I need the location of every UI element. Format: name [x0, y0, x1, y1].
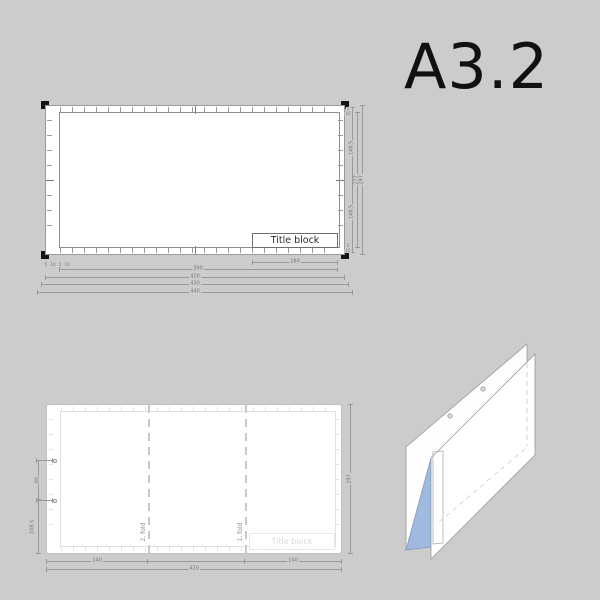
- dim-label: 80: [36, 476, 41, 484]
- front-view-sheet: Title block: [45, 105, 345, 255]
- dim-label: 140: [91, 559, 103, 564]
- format-title: A3.2: [404, 36, 549, 98]
- dim-label: 420: [189, 275, 201, 280]
- dim-tick: [244, 559, 245, 564]
- dim-line-below-hole: [38, 500, 39, 554]
- dim-label: 5: [58, 263, 63, 267]
- dim-label: 108.5: [31, 519, 36, 535]
- dim-label: 430: [189, 282, 201, 287]
- fold-line-2: [148, 405, 150, 553]
- punch-hole-icon: [53, 459, 57, 463]
- dim-label: 420: [188, 567, 200, 572]
- fold-margin-border: [60, 411, 336, 547]
- title-block-box: Title block: [252, 233, 338, 248]
- iso-punch-hole-icon: [481, 387, 485, 391]
- dim-tick: [147, 559, 148, 564]
- dim-label: 140: [287, 559, 299, 564]
- dim-label: 390: [192, 267, 204, 272]
- dim-label: 5: [44, 263, 49, 267]
- fold-line-1: [245, 405, 247, 553]
- drawing-template-page: A3.2 Title block 148.5 148.5 277 297 5 1…: [0, 0, 600, 600]
- punch-hole-icon: [53, 499, 57, 503]
- dim-label: 148.5: [350, 204, 355, 220]
- dim-label: 10: [49, 263, 56, 267]
- dim-label: 297: [360, 174, 365, 186]
- dim-label: 180: [289, 260, 301, 265]
- dim-label: 10: [344, 112, 351, 116]
- fold-line-1-label: 1. fold: [238, 522, 244, 543]
- iso-punch-hole-icon: [448, 414, 452, 418]
- dim-label: 148.5: [350, 140, 355, 156]
- drawing-frame-border: [59, 112, 340, 248]
- dim-label: 10: [63, 263, 70, 267]
- fold-view-sheet: 2. fold 1. fold Title block: [46, 404, 342, 554]
- dim-label: 440: [189, 290, 201, 295]
- dim-label: 10: [344, 249, 351, 253]
- center-mark-left: [46, 180, 54, 181]
- folded-sheet-iso-view: [393, 333, 545, 569]
- fold-line-2-label: 2. fold: [141, 522, 147, 543]
- fold-title-block-box: Title block: [249, 533, 335, 550]
- dim-label: 297: [348, 473, 353, 485]
- title-block-label: Title block: [271, 235, 320, 246]
- fold-ticks-left: [49, 419, 53, 539]
- fold-title-block-label: Title block: [272, 537, 313, 546]
